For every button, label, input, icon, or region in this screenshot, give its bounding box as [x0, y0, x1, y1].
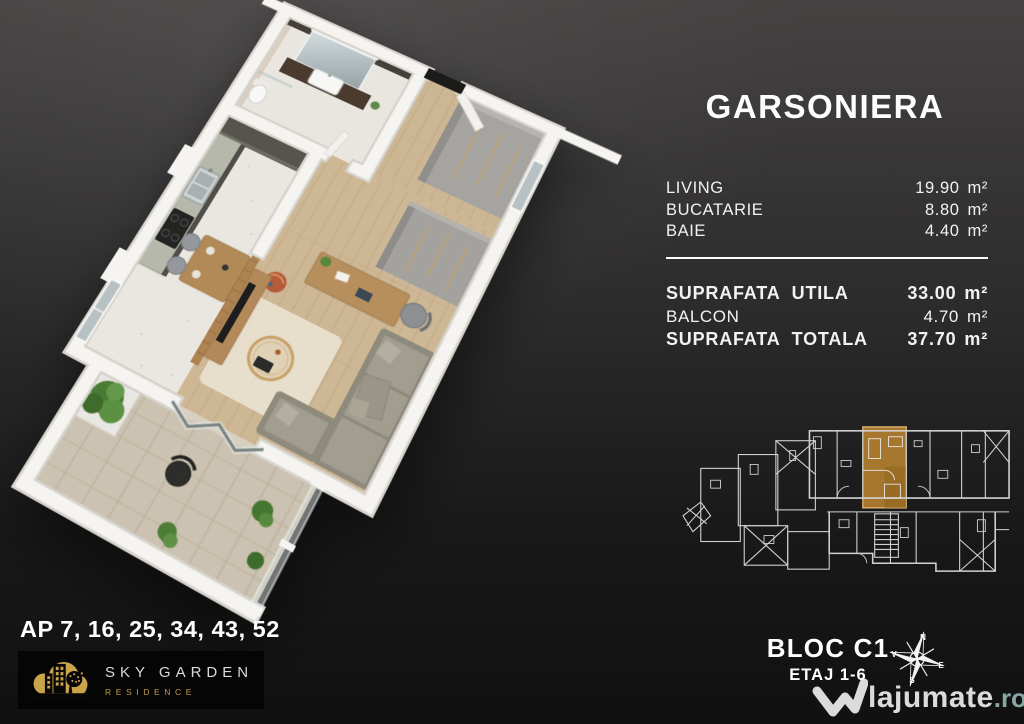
- total-label: SUPRAFATA UTILA: [666, 282, 849, 305]
- brand-sub: RESIDENCE: [105, 687, 253, 697]
- total-row: SUPRAFATA UTILA 33.00m²: [666, 282, 988, 305]
- listing-flyer: GARSONIERA LIVING 19.90m² BUCATARIE 8.80…: [0, 0, 1024, 724]
- total-value: 37.70: [907, 328, 956, 351]
- total-label: BALCON: [666, 305, 740, 328]
- room-value: 4.40: [925, 221, 960, 243]
- total-value: 33.00: [907, 282, 956, 305]
- total-unit: m²: [967, 305, 988, 328]
- area-row: BAIE 4.40m²: [666, 221, 988, 243]
- room-label: BUCATARIE: [666, 200, 763, 222]
- room-unit: m²: [968, 178, 988, 200]
- sky-garden-logo: SKY GARDEN RESIDENCE: [18, 651, 264, 709]
- room-unit: m²: [968, 221, 988, 243]
- apartment-3d-plan: [0, 10, 565, 657]
- watermark-text: lajumate: [868, 681, 994, 715]
- total-areas: SUPRAFATA UTILA 33.00m² BALCON 4.70m² SU…: [658, 282, 992, 351]
- area-row: LIVING 19.90m²: [666, 178, 988, 200]
- total-unit: m²: [964, 328, 988, 351]
- building-floor-plan: [681, 420, 1013, 580]
- block-name: BLOC C1: [748, 633, 908, 664]
- room-label: BAIE: [666, 221, 706, 243]
- apartment-3d-plan-svg: [0, 10, 565, 657]
- total-row: SUPRAFATA TOTALA 37.70m²: [666, 328, 988, 351]
- room-unit: m²: [968, 200, 988, 222]
- sky-garden-mark-icon: [26, 654, 96, 706]
- total-row: BALCON 4.70m²: [666, 305, 988, 328]
- apartments-line: AP 7, 16, 25, 34, 43, 52: [20, 616, 280, 643]
- room-areas: LIVING 19.90m² BUCATARIE 8.80m² BAIE 4.4…: [658, 178, 992, 243]
- compass-label-v: V: [891, 650, 897, 659]
- room-value: 19.90: [915, 178, 959, 200]
- compass-label-n: N: [920, 633, 926, 642]
- brand-name: SKY GARDEN: [105, 664, 253, 681]
- area-row: BUCATARIE 8.80m²: [666, 200, 988, 222]
- divider: [666, 257, 988, 260]
- watermark-mark-icon: [812, 678, 868, 718]
- watermark: lajumate.ro: [812, 678, 1024, 718]
- room-value: 8.80: [925, 200, 960, 222]
- watermark-tld: .ro: [994, 683, 1024, 714]
- total-label: SUPRAFATA TOTALA: [666, 328, 868, 351]
- total-value: 4.70: [923, 305, 959, 328]
- room-label: LIVING: [666, 178, 724, 200]
- compass-label-e: E: [938, 661, 944, 670]
- area-panel: GARSONIERA LIVING 19.90m² BUCATARIE 8.80…: [658, 88, 992, 351]
- page-title: GARSONIERA: [658, 88, 992, 126]
- total-unit: m²: [964, 282, 988, 305]
